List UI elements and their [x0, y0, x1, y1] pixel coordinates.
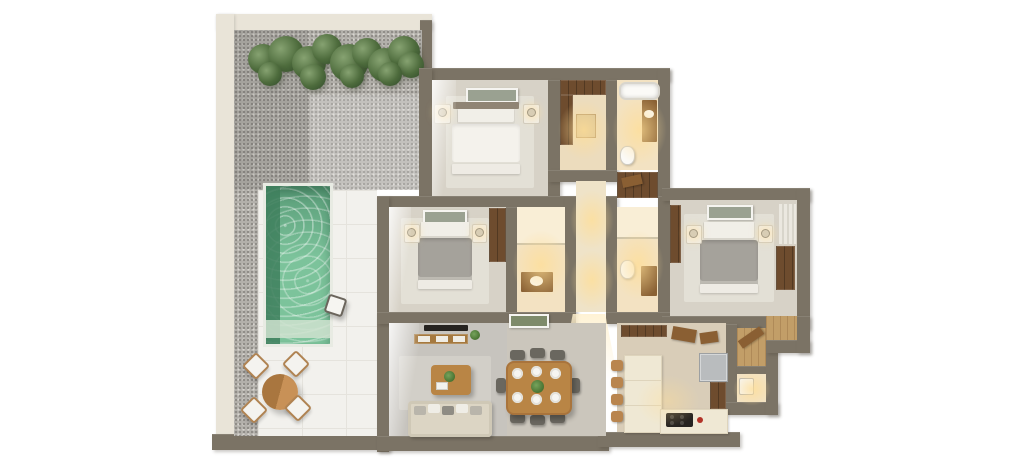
table-lamp — [407, 228, 416, 237]
dining-chair — [530, 348, 545, 358]
wall-art — [707, 205, 753, 220]
dining-chair — [510, 350, 525, 360]
plant-shrub — [300, 64, 326, 90]
swimming-pool — [263, 183, 333, 347]
gravel-highlight — [310, 95, 422, 190]
media-console — [414, 334, 468, 344]
plant-shrub — [258, 62, 282, 86]
bar-stool — [611, 377, 623, 388]
plant-shrub — [378, 62, 402, 86]
wall-segment — [565, 196, 576, 313]
dining-chair — [530, 415, 545, 425]
cooktop — [666, 413, 693, 427]
washer — [739, 378, 754, 395]
sofa-cushion — [442, 406, 454, 415]
wardrobe — [560, 95, 573, 145]
bed-duvet-gray — [700, 240, 758, 288]
bathtub — [619, 82, 660, 100]
place-setting — [550, 368, 561, 379]
shower — [617, 207, 658, 239]
bed-blanket — [700, 284, 758, 293]
sofa-cushion — [456, 404, 468, 413]
plant-shrub — [340, 64, 364, 88]
table-books — [436, 382, 448, 390]
wall-segment — [506, 207, 517, 313]
bathroom-vanity — [642, 100, 657, 142]
place-setting — [550, 392, 561, 403]
wall-segment — [606, 196, 617, 313]
bed-pillows — [420, 222, 470, 238]
wall-segment — [797, 188, 810, 329]
terrace-wall-bottom — [212, 434, 390, 450]
table-lamp — [475, 228, 484, 237]
sofa-cushion — [470, 406, 482, 415]
island-counter — [624, 355, 662, 433]
wall-segment — [419, 68, 432, 209]
wash-basin — [530, 276, 543, 286]
sofa-cushion — [414, 406, 426, 415]
closet-strip — [670, 205, 681, 263]
wardrobe — [776, 246, 795, 290]
fridge — [699, 353, 728, 382]
table-lamp — [527, 108, 536, 117]
tall-cabinet — [710, 382, 726, 409]
bar-stool — [611, 360, 623, 371]
wall-segment — [548, 80, 560, 209]
place-setting — [531, 394, 542, 405]
wall-art — [509, 314, 549, 328]
terrace-wall-top — [216, 14, 432, 30]
vestibule-floor — [766, 316, 797, 340]
shower — [517, 207, 565, 245]
wash-basin — [644, 110, 654, 118]
wall-segment — [598, 432, 740, 447]
hallway-floor — [576, 181, 606, 312]
bed-duvet — [452, 124, 520, 168]
floorplan-render — [0, 0, 1024, 461]
bar-stool — [611, 394, 623, 405]
place-setting — [512, 368, 523, 379]
place-setting — [512, 392, 523, 403]
pool-shallow-end — [266, 320, 330, 338]
bed-blanket — [452, 164, 520, 174]
bed-headboard — [453, 102, 519, 109]
sofa-cushion — [428, 404, 440, 413]
table-lamp — [761, 229, 770, 238]
wardrobe — [560, 80, 606, 95]
wall-segment — [797, 316, 810, 353]
window-curtain — [779, 204, 796, 244]
table-plant — [444, 371, 455, 382]
bed-blanket — [418, 280, 472, 289]
wall-tv — [424, 325, 468, 331]
wall-segment — [606, 80, 617, 173]
dining-chair — [550, 350, 565, 360]
bed-pillows — [457, 109, 515, 124]
bar-stool — [611, 411, 623, 422]
toilet — [620, 260, 635, 279]
potted-plant — [470, 330, 480, 340]
terrace-wall-left — [216, 14, 234, 440]
centerpiece-plant — [531, 380, 544, 393]
wall-segment — [766, 344, 778, 415]
kettle — [697, 417, 703, 423]
wall-segment — [377, 196, 389, 452]
place-setting — [531, 366, 542, 377]
toilet — [620, 146, 635, 165]
bed-duvet-gray — [418, 238, 472, 284]
bed-pillows — [703, 222, 755, 240]
wall-segment — [658, 196, 670, 313]
table-lamp — [438, 108, 447, 117]
bathroom-vanity — [641, 266, 657, 296]
wardrobe — [489, 208, 506, 262]
closet-bench — [576, 114, 596, 138]
dining-chair — [496, 378, 506, 393]
sideboard — [621, 325, 667, 337]
table-lamp — [689, 229, 698, 238]
wall-art — [466, 88, 518, 103]
wall-segment — [377, 436, 609, 451]
